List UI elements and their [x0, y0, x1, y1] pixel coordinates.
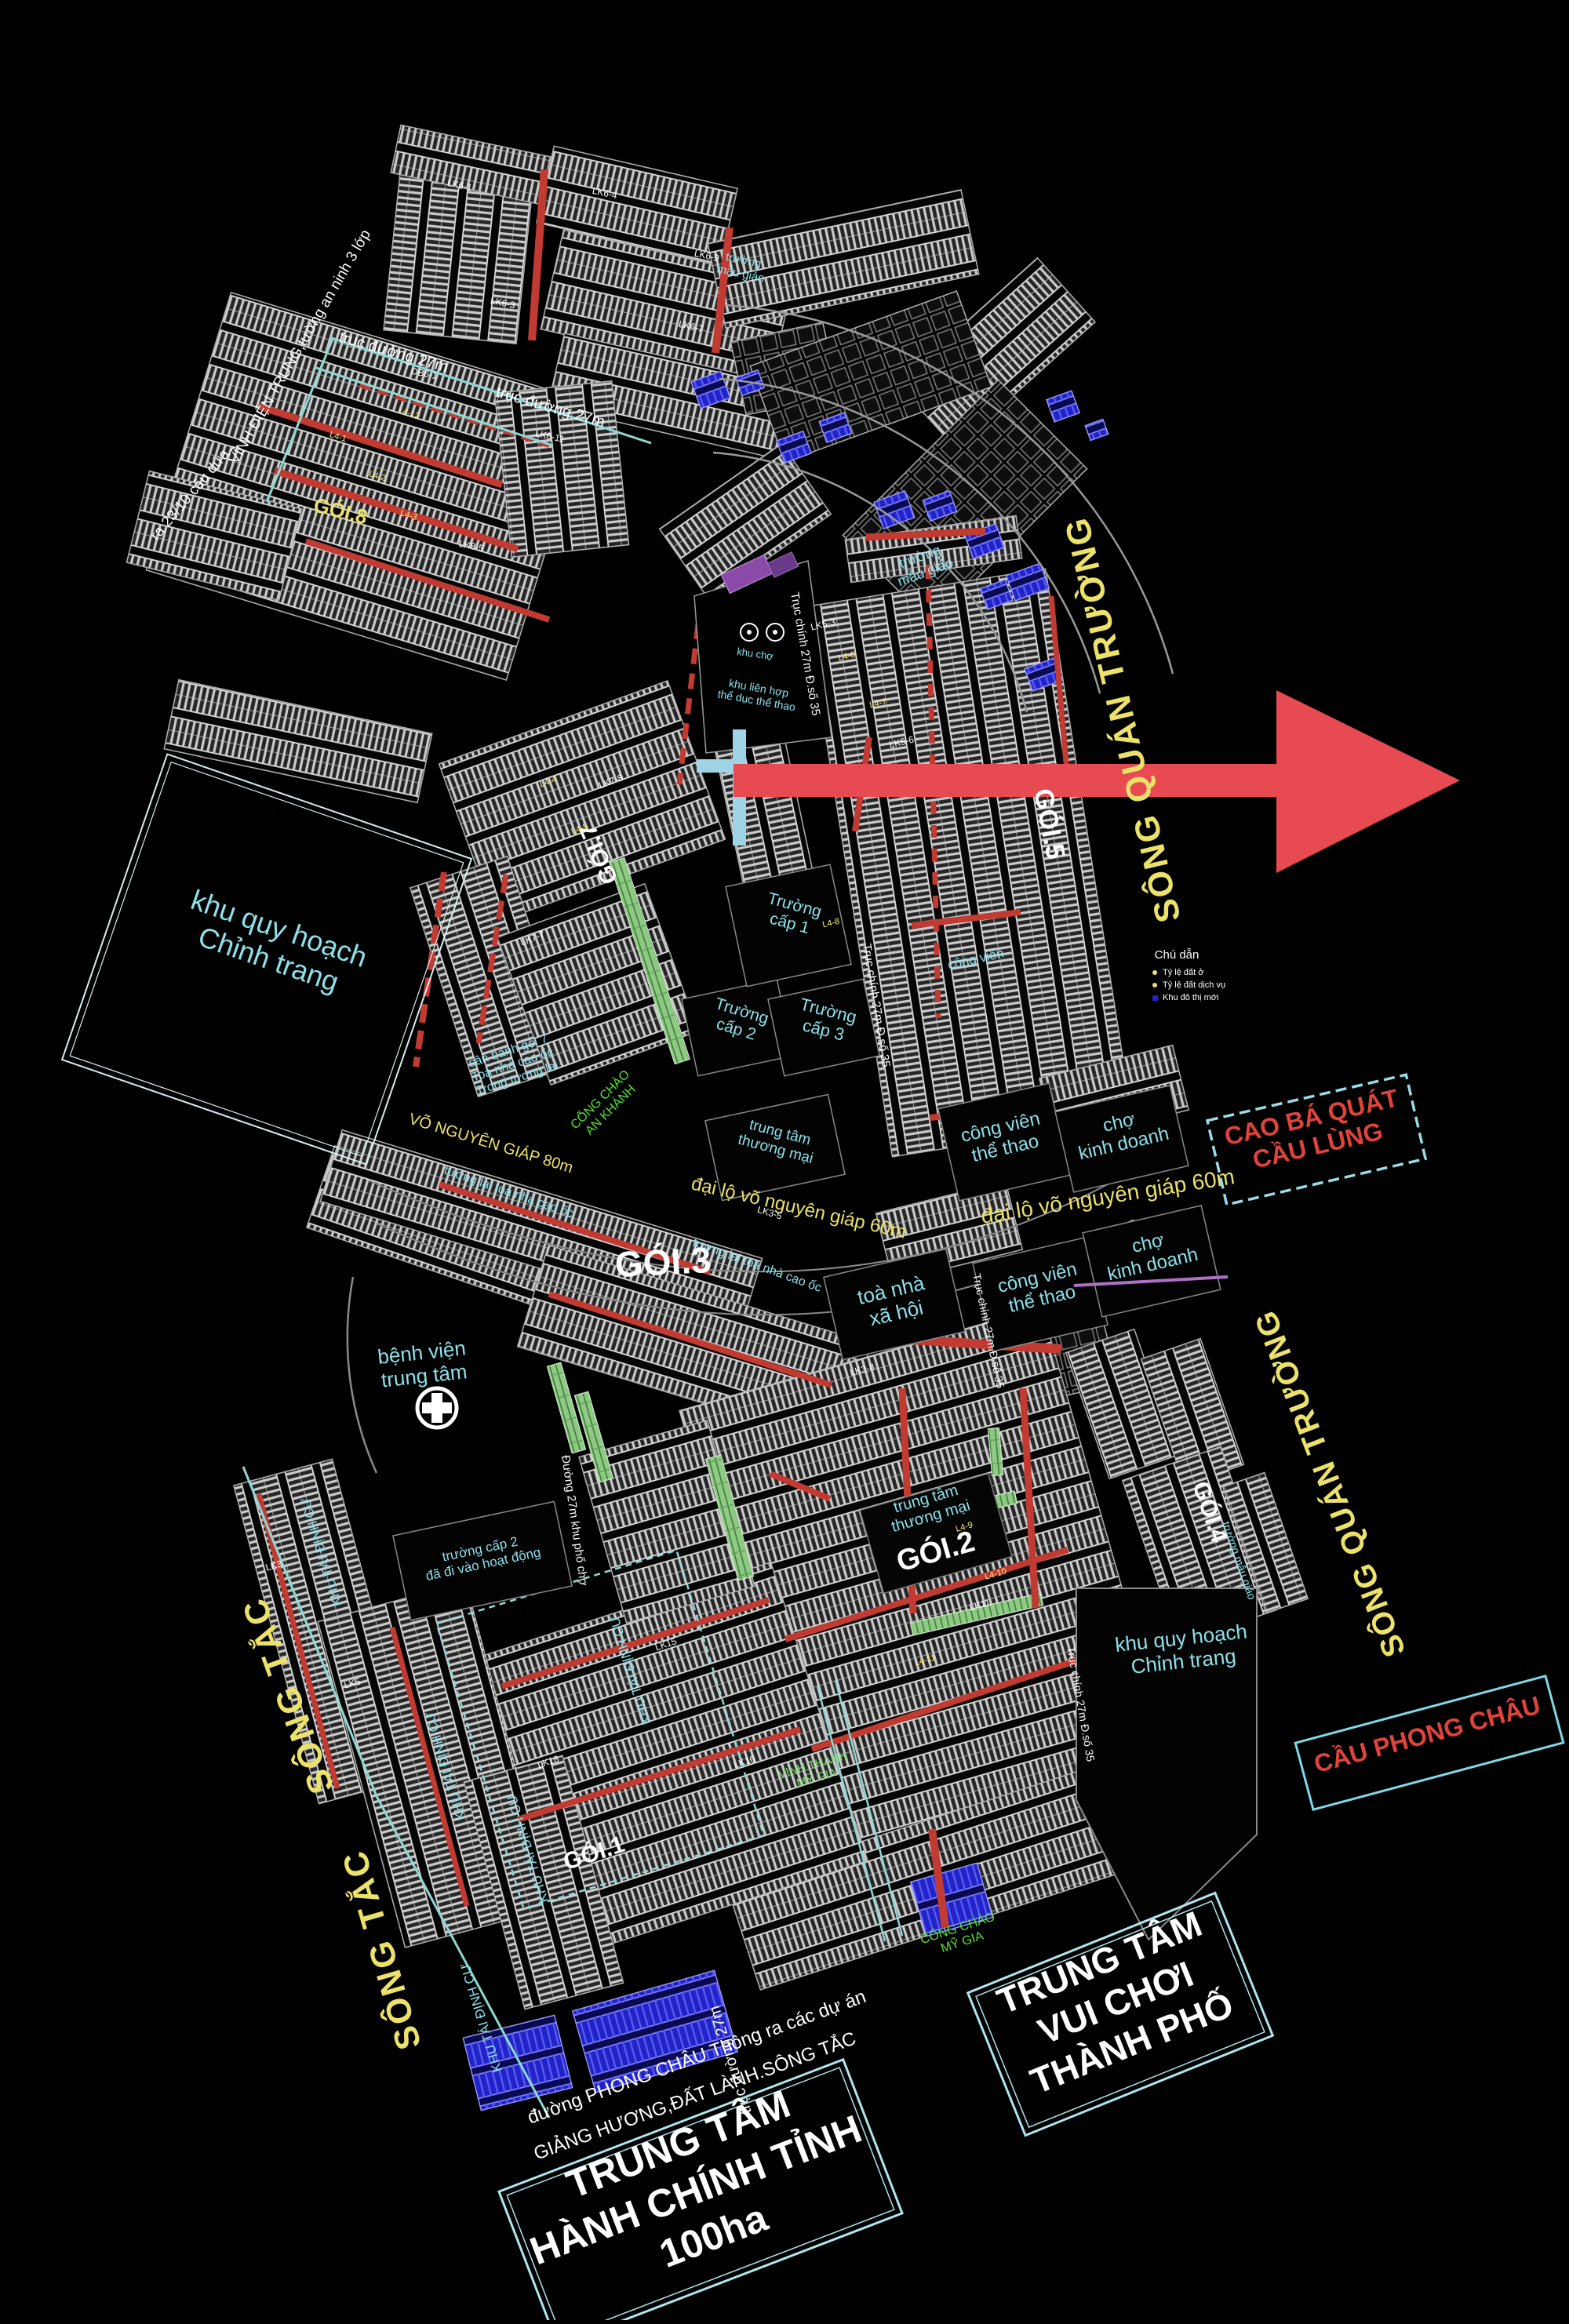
- svg-text:Tỷ lệ đất dịch vụ: Tỷ lệ đất dịch vụ: [1163, 980, 1225, 990]
- svg-text:Chú dẫn: Chú dẫn: [1155, 948, 1200, 962]
- svg-text:Khu đô thị mới: Khu đô thị mới: [1163, 993, 1218, 1002]
- svg-text:bệnh việntrung tâm: bệnh việntrung tâm: [377, 1336, 469, 1391]
- svg-text:Tỷ lệ đất ở: Tỷ lệ đất ở: [1163, 968, 1203, 977]
